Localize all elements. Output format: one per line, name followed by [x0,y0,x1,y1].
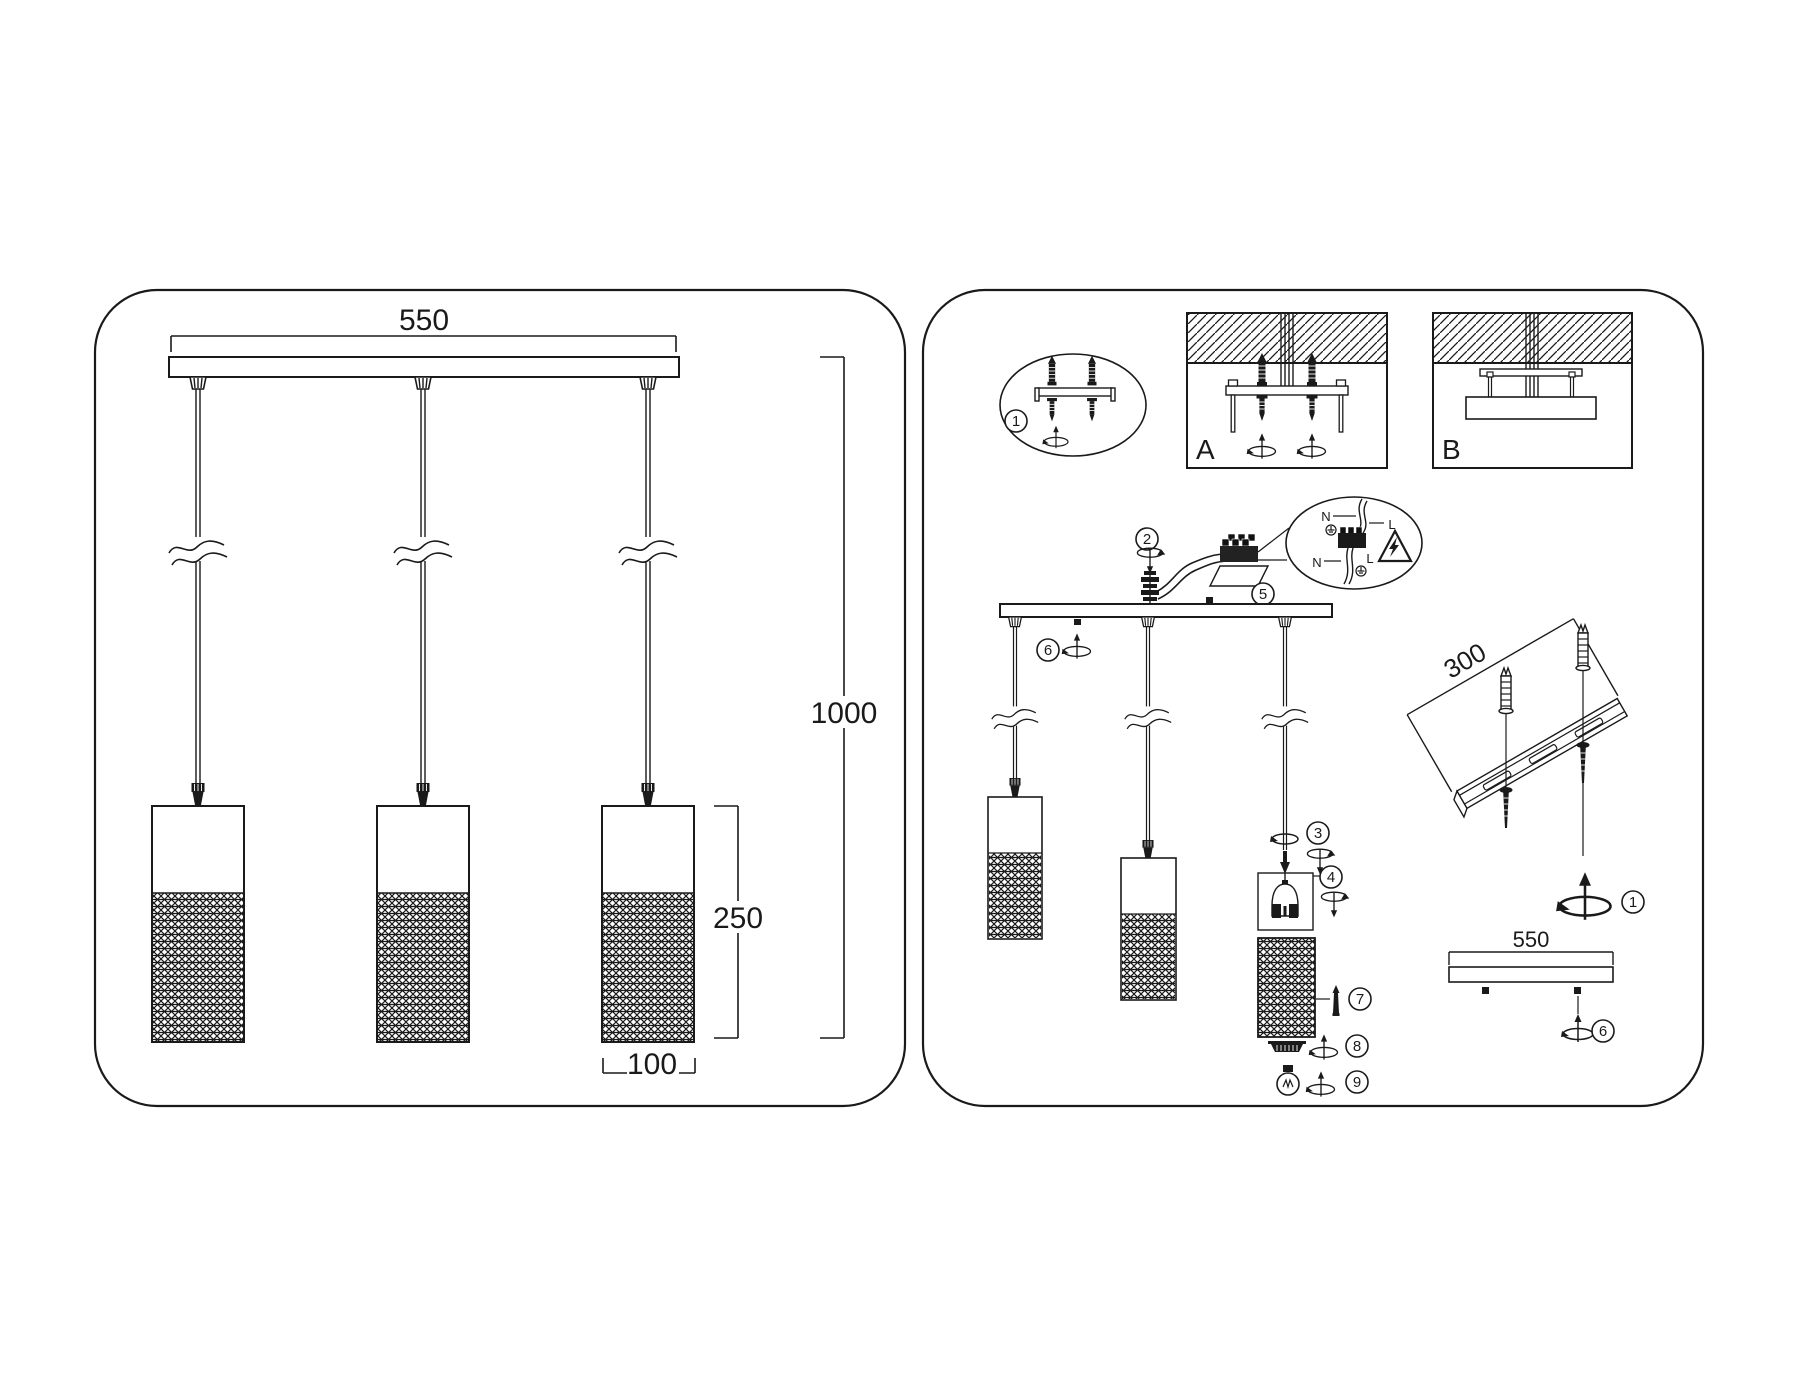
svg-text:8: 8 [1353,1038,1361,1055]
canopy-screw-head [1206,597,1213,603]
canopy-dim-label: 550 [1513,927,1550,952]
step-marker-5: 5 [1252,583,1274,605]
svg-text:1: 1 [1629,894,1637,911]
step-marker-7: 7 [1349,988,1371,1010]
step-marker-4: 4 [1320,866,1342,888]
cord-break-symbol [989,706,1040,728]
step-marker-9: 9 [1346,1071,1368,1093]
svg-text:7: 7 [1356,991,1364,1008]
svg-text:6: 6 [1599,1023,1607,1040]
mount-option-b: B [1433,313,1632,468]
wall-anchor-icon [1576,625,1590,671]
line-label-bottom: L [1366,551,1373,566]
step-marker-6: 6 [1037,639,1059,661]
cord-hanger [415,377,431,389]
cord-break-symbol [616,537,680,565]
dim-shade-diameter-label: 100 [627,1048,677,1081]
cord-hanger [1009,617,1022,627]
technical-drawing: 550 [0,0,1800,1400]
svg-text:9: 9 [1353,1074,1361,1091]
canvas-background [0,0,1800,1400]
canopy-bar [169,357,679,377]
neutral-label-top: N [1321,509,1330,524]
canopy-screw-head [1574,987,1581,994]
bracket-bolt [1487,372,1493,397]
earth-symbol [1326,525,1336,535]
option-a-label: A [1196,434,1215,465]
instruction-sheet: 550 [0,0,1800,1400]
cord-break-symbol [391,537,455,565]
svg-text:2: 2 [1143,531,1151,548]
option-b-label: B [1442,434,1461,465]
shade-mesh [378,893,468,1041]
cord-hanger [640,377,656,389]
cord-break-symbol [1259,706,1310,728]
shade-mesh [1258,938,1315,1037]
ceiling-hatch [1187,313,1387,363]
cord-break-symbol [1122,706,1173,728]
svg-text:5: 5 [1259,586,1267,603]
shade-mesh [603,893,693,1041]
svg-text:1: 1 [1012,413,1020,430]
step-marker-1: 1 [1622,891,1644,913]
step-marker-2: 2 [1136,528,1158,550]
canopy-bar [1000,604,1332,617]
cord-hanger [1142,617,1155,627]
canopy-bar [1449,967,1613,982]
step-marker-1: 1 [1005,410,1027,432]
dim-height-label: 1000 [811,697,878,730]
svg-text:4: 4 [1327,869,1335,886]
cord-hanger [190,377,206,389]
mounting-bracket [1480,369,1582,376]
step-marker-8: 8 [1346,1035,1368,1057]
screw-icon [1074,619,1081,625]
shade-mesh [153,893,243,1041]
dim-width-label: 550 [399,304,449,337]
shade-mesh [1122,914,1175,999]
mounting-bracket [1038,388,1112,396]
cord-hanger [1279,617,1292,627]
earth-symbol [1356,566,1366,576]
dim-shade-height-label: 250 [713,902,763,935]
ceiling-hatch [1433,313,1632,363]
mount-option-a: A [1187,313,1387,468]
svg-text:3: 3 [1314,825,1322,842]
shade-mesh [989,853,1041,938]
step-marker-3: 3 [1307,822,1329,844]
wall-anchor-icon [1499,668,1513,714]
mounting-bracket [1226,386,1348,395]
svg-text:6: 6 [1044,642,1052,659]
terminal-block-small [1338,533,1366,548]
cord-break-symbol [166,537,230,565]
ceiling-canopy [1466,397,1596,419]
step-marker-6: 6 [1592,1020,1614,1042]
neutral-label-bottom: N [1312,555,1321,570]
canopy-screw-head [1482,987,1489,994]
bracket-bolt [1569,372,1575,397]
